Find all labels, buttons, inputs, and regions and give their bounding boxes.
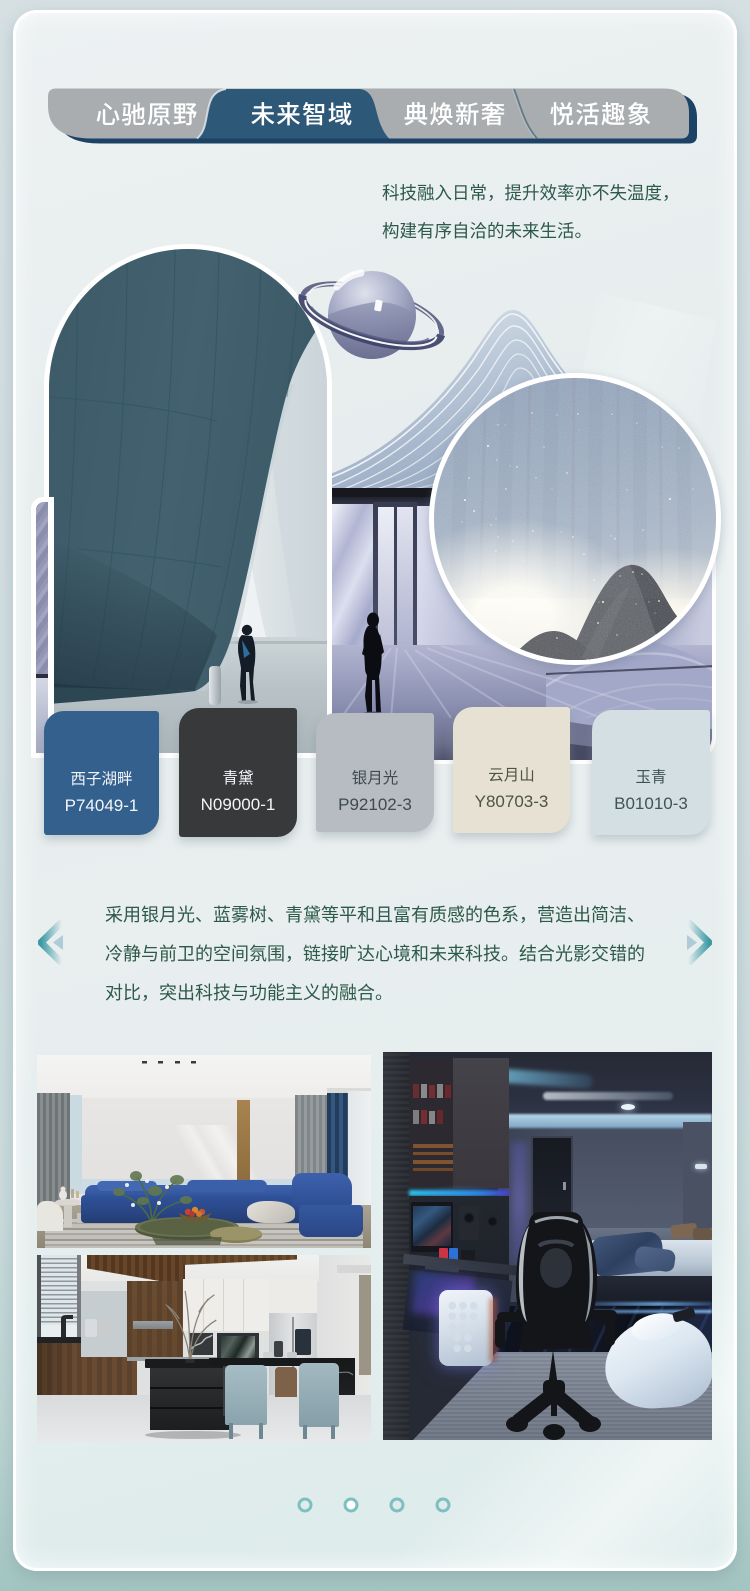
svg-text:典焕新奢: 典焕新奢 — [404, 101, 507, 129]
svg-text:未来智域: 未来智域 — [251, 101, 354, 129]
svg-text:心驰原野: 心驰原野 — [96, 101, 199, 129]
svg-text:悦活趣象: 悦活趣象 — [550, 101, 653, 129]
